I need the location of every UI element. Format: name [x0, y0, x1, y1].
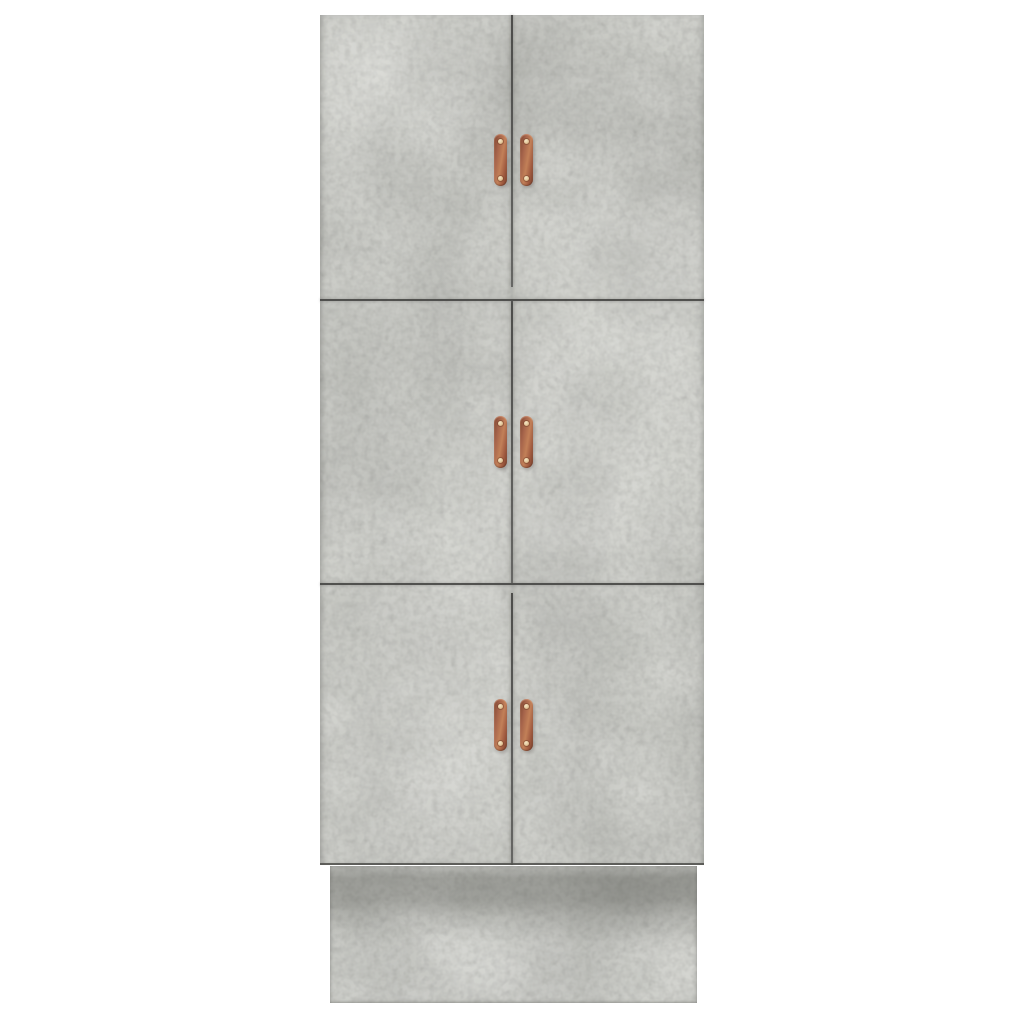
copper-handle-bottom-left [494, 699, 507, 751]
door-bottom-edge [320, 863, 704, 865]
handle-screw-top [524, 421, 529, 426]
handle-screw-bottom [524, 176, 529, 181]
door-gap-vertical-middle [511, 301, 513, 583]
panel-seam-horizontal-lower [320, 583, 704, 585]
handle-screw-top [498, 704, 503, 709]
door-top-left [320, 15, 512, 299]
product-photo-canvas [0, 0, 1024, 1024]
handle-screw-bottom [498, 741, 503, 746]
handle-screw-bottom [524, 741, 529, 746]
door-gap-vertical-bottom [511, 593, 513, 865]
overhang-shadow [330, 866, 697, 1003]
panel-seam-horizontal-upper [320, 299, 704, 301]
handle-screw-top [524, 139, 529, 144]
handle-screw-top [498, 139, 503, 144]
copper-handle-bottom-right [520, 699, 533, 751]
copper-handle-middle-right [520, 416, 533, 468]
cabinet [320, 15, 704, 1003]
door-middle-left [320, 299, 512, 583]
handle-screw-bottom [524, 458, 529, 463]
cabinet-doors-panel [320, 15, 704, 865]
copper-handle-middle-left [494, 416, 507, 468]
handle-screw-top [524, 704, 529, 709]
door-top-right [512, 15, 704, 299]
plinth-base [330, 866, 697, 1003]
copper-handle-top-right [520, 134, 533, 186]
copper-handle-top-left [494, 134, 507, 186]
door-bottom-left [320, 583, 512, 865]
handle-screw-bottom [498, 458, 503, 463]
door-gap-vertical-top [511, 15, 513, 287]
handle-screw-bottom [498, 176, 503, 181]
door-bottom-right [512, 583, 704, 865]
door-middle-right [512, 299, 704, 583]
handle-screw-top [498, 421, 503, 426]
